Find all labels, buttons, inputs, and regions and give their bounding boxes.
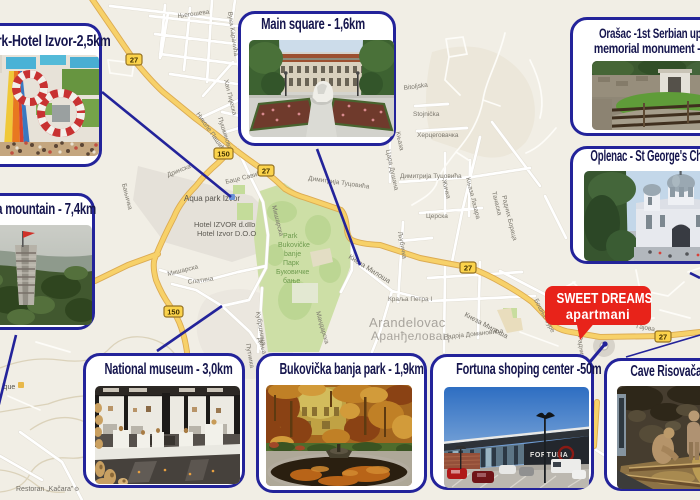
svg-text:27: 27 bbox=[262, 167, 270, 176]
svg-text:Arandelovac: Arandelovac bbox=[369, 315, 446, 330]
svg-text:150: 150 bbox=[167, 308, 180, 317]
svg-text:Краља Петра I: Краља Петра I bbox=[388, 296, 432, 303]
svg-text:150: 150 bbox=[217, 150, 230, 159]
svg-text:27: 27 bbox=[659, 333, 667, 342]
svg-text:Парк: Парк bbox=[283, 260, 300, 267]
svg-text:Димитрија Туцовића: Димитрија Туцовића bbox=[400, 172, 462, 180]
svg-text:Аранђеловац: Аранђеловац bbox=[371, 329, 450, 343]
svg-text:27: 27 bbox=[130, 56, 138, 65]
svg-text:FORTUNA: FORTUNA bbox=[530, 452, 568, 459]
svg-text:⚙: ⚙ bbox=[74, 486, 79, 493]
svg-text:Restoran „Kačara”: Restoran „Kačara” bbox=[16, 486, 74, 493]
svg-text:бање: бање bbox=[283, 277, 300, 285]
svg-text:27: 27 bbox=[464, 264, 472, 273]
svg-text:Hotel IZVOR d.o.o: Hotel IZVOR d.o.o bbox=[194, 220, 255, 229]
svg-text:Буковичке: Буковичке bbox=[276, 269, 309, 276]
svg-text:banje: banje bbox=[284, 251, 301, 258]
svg-text:Hotel Izvor D.O.O: Hotel Izvor D.O.O bbox=[197, 229, 256, 238]
svg-text:Park: Park bbox=[283, 233, 298, 240]
svg-text:Stojnička: Stojnička bbox=[413, 111, 440, 118]
svg-text:Bukovičke: Bukovičke bbox=[278, 242, 310, 249]
svg-text:Церска: Церска bbox=[426, 213, 448, 220]
svg-text:Херцеговачка: Херцеговачка bbox=[417, 132, 459, 139]
